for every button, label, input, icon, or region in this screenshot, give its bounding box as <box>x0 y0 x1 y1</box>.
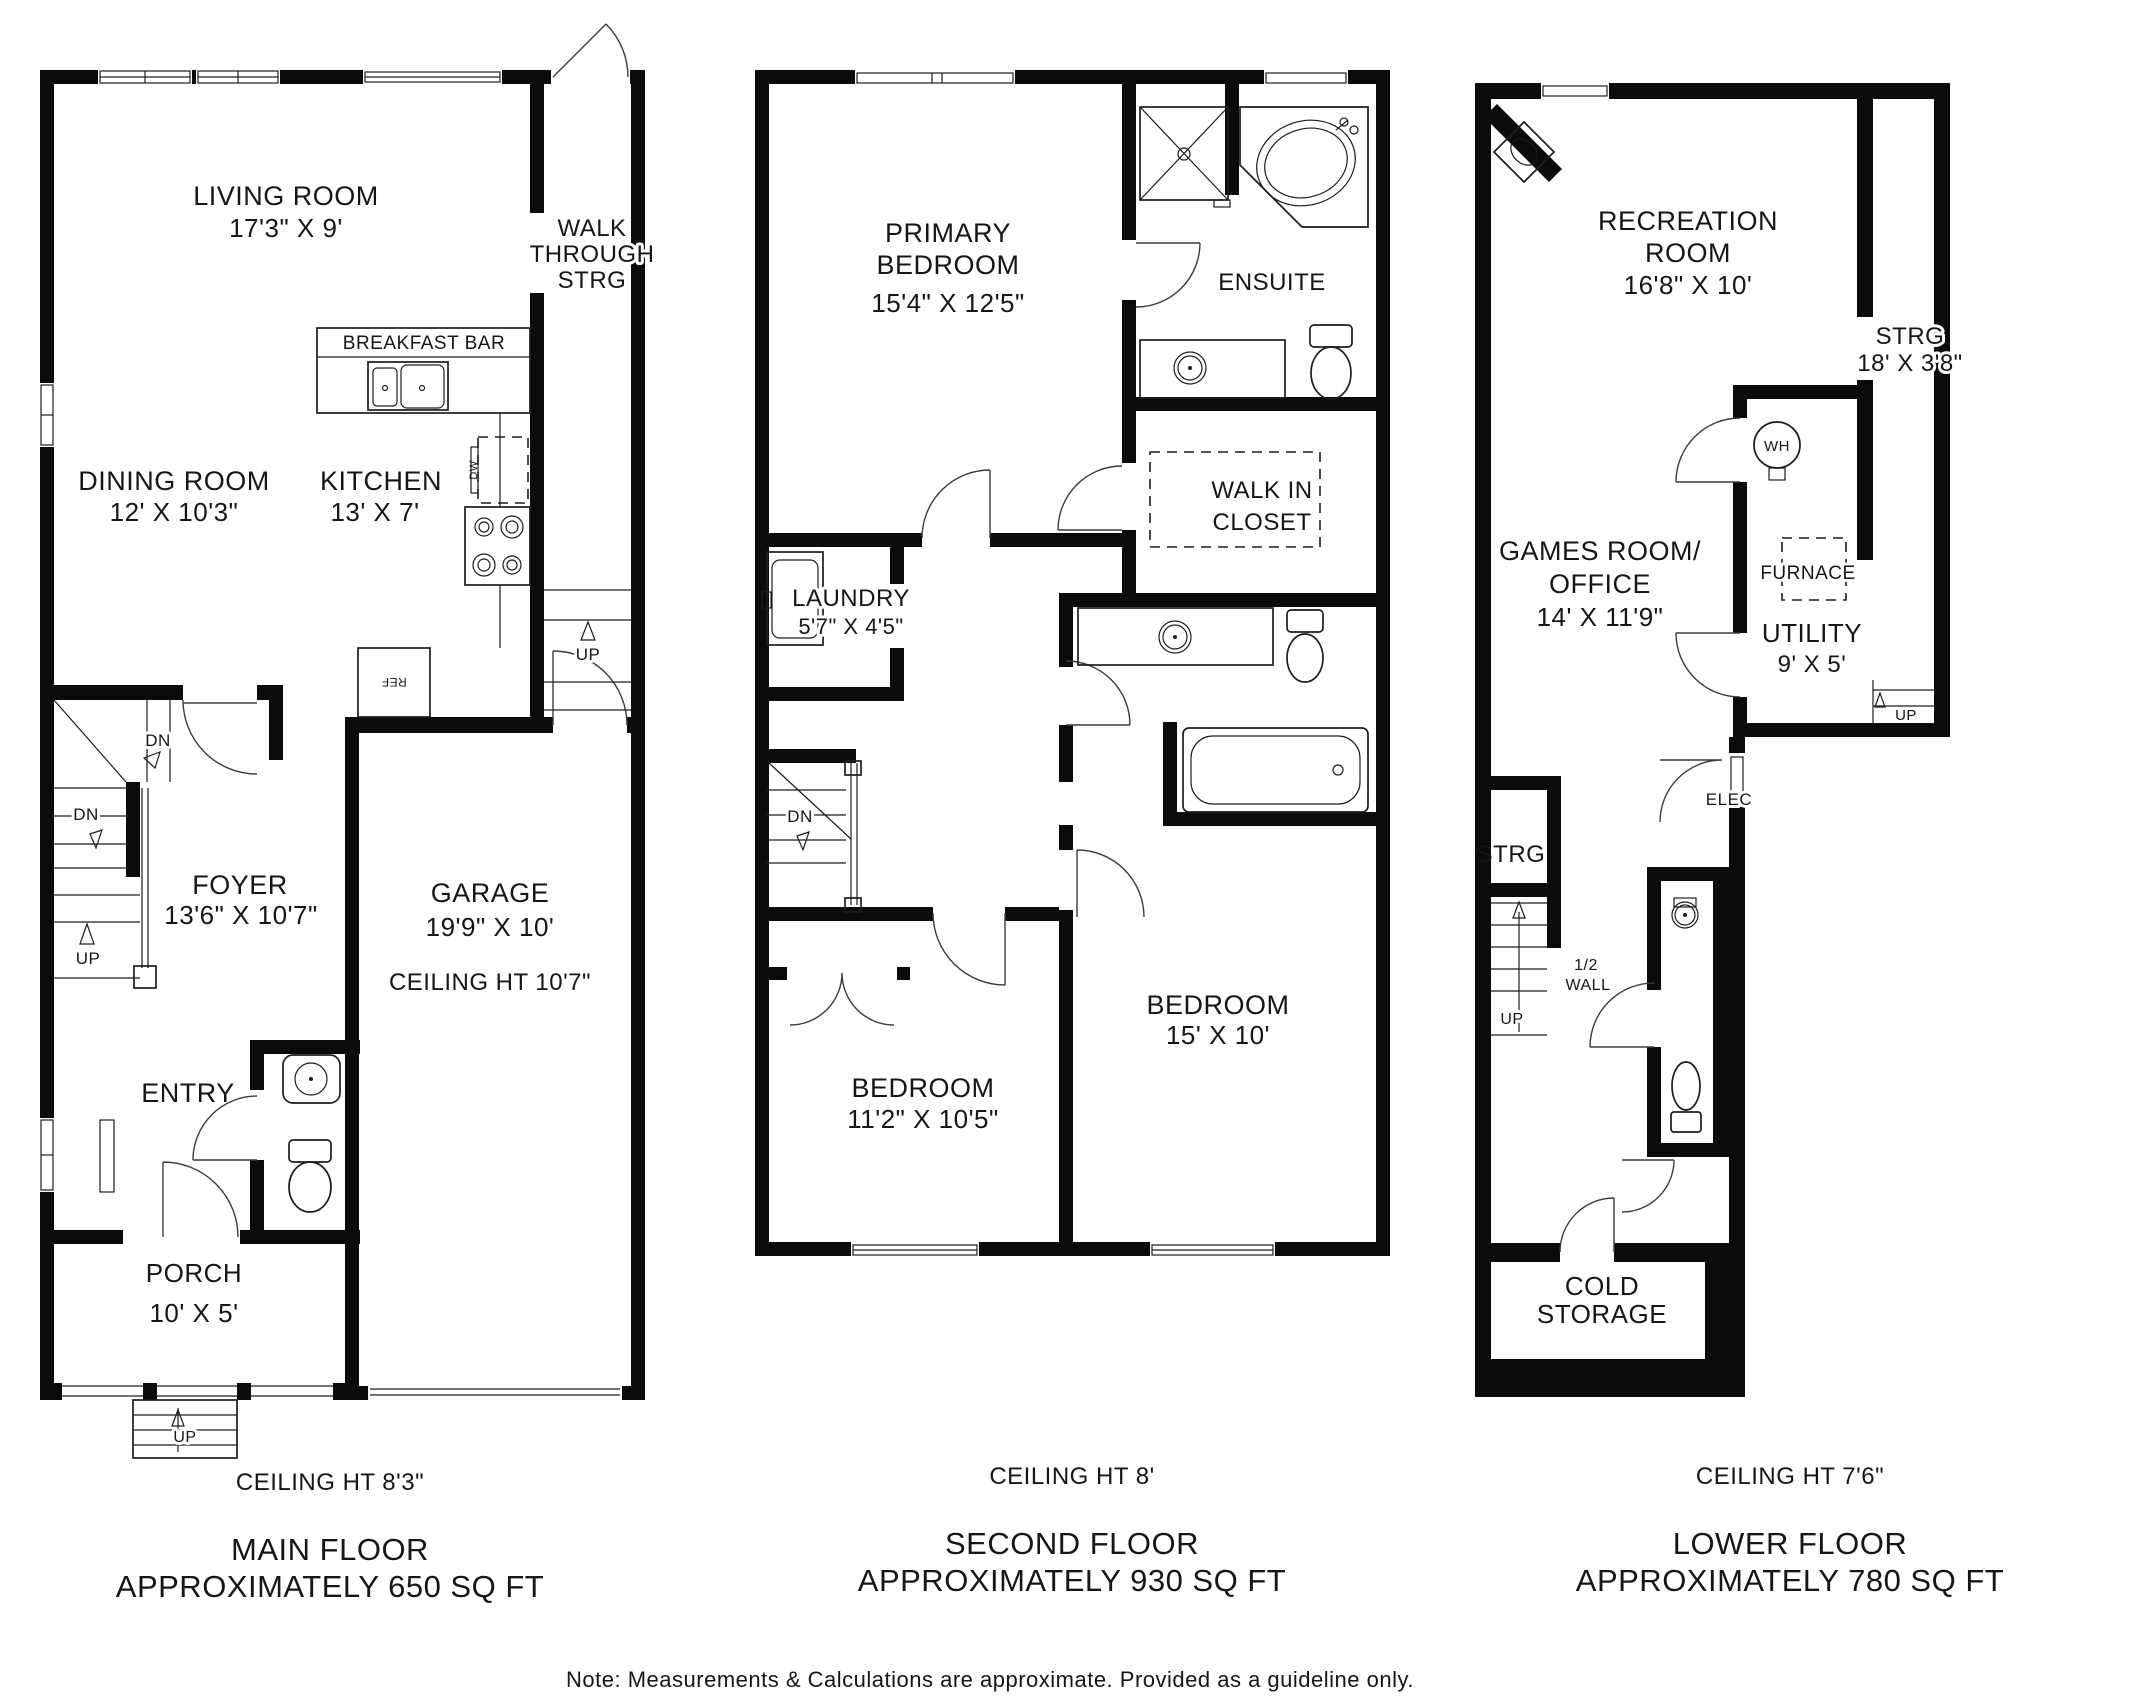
bathroom-door-arc <box>1066 661 1130 725</box>
floorplan-page: LIVING ROOM 17'3" X 9' WALK THROUGH STRG… <box>0 0 2141 1698</box>
bedroom-right-door-arc <box>1077 850 1144 917</box>
ensuite-label: ENSUITE <box>1218 269 1326 296</box>
cold-storage-label: STORAGE <box>1537 1299 1667 1329</box>
primary-bedroom-dims: 15'4" X 12'5" <box>871 288 1024 318</box>
lower-floor-footer: CEILING HT 7'6" LOWER FLOOR APPROXIMATEL… <box>1576 1463 2004 1598</box>
half-wall-label: WALL <box>1566 977 1611 994</box>
bathtub-icon <box>1183 728 1368 812</box>
lower-bath-toilet-icon <box>1671 1062 1701 1132</box>
powder-sink-icon <box>283 1055 340 1103</box>
utility-top-door-arc <box>1676 418 1740 482</box>
dn-label: DN <box>145 731 171 750</box>
dn-arrow-icon <box>90 830 102 848</box>
foyer-label: FOYER <box>192 870 288 900</box>
hall-bottom-door-arc <box>1622 1160 1674 1212</box>
bedroom-left-label: BEDROOM <box>851 1073 994 1103</box>
garage-dims: 19'9" X 10' <box>426 912 555 942</box>
garage-label: GARAGE <box>431 878 550 908</box>
up-arrow-icon <box>1875 693 1885 707</box>
up-arrow-icon <box>80 924 94 944</box>
up-label: UP <box>1895 707 1917 724</box>
walk-in-closet-label: CLOSET <box>1212 509 1311 536</box>
walkthrough-strg-label: WALK <box>557 215 626 242</box>
walkthrough-strg-label: STRG <box>558 267 627 294</box>
lower-bath-sink-icon <box>1672 898 1698 928</box>
shower-icon <box>1140 107 1230 207</box>
primary-bedroom-door-arc <box>922 470 990 538</box>
up-label: UP <box>76 949 101 968</box>
porch-label: PORCH <box>146 1258 242 1288</box>
closet-double-door-arcs <box>790 973 894 1025</box>
living-room-label: LIVING ROOM <box>193 181 379 211</box>
corner-tub-icon <box>1240 107 1368 227</box>
main-floor-footer: CEILING HT 8'3" MAIN FLOOR APPROXIMATELY… <box>116 1469 544 1604</box>
games-room-label: OFFICE <box>1549 569 1651 599</box>
bedroom-left-door-arc <box>933 913 1005 985</box>
kitchen-label: KITCHEN <box>320 466 442 496</box>
ensuite-vanity-icon <box>1140 340 1285 398</box>
cold-storage-label: COLD <box>1565 1271 1639 1301</box>
cold-storage-door-arc <box>1560 1198 1614 1252</box>
entry-closet <box>100 1120 114 1192</box>
utility-dims: 9' X 5' <box>1778 651 1847 678</box>
powder-toilet-icon <box>289 1140 331 1212</box>
laundry-dims: 5'7" X 4'5" <box>798 614 903 639</box>
up-label: UP <box>173 1429 196 1446</box>
closet-door-arc <box>1058 466 1122 530</box>
up-label: UP <box>1500 1011 1523 1028</box>
bath-vanity-icon <box>1078 608 1273 665</box>
strg-right-dims: 18' X 3'8" <box>1857 350 1962 377</box>
recreation-room-dims: 16'8" X 10' <box>1624 270 1753 300</box>
main-floor-name: MAIN FLOOR <box>231 1532 429 1567</box>
games-room-dims: 14' X 11'9" <box>1537 602 1664 632</box>
second-floor-stairs <box>766 761 861 912</box>
bedroom-right-dims: 15' X 10' <box>1166 1020 1270 1050</box>
lower-floor-ceiling: CEILING HT 7'6" <box>1696 1463 1884 1490</box>
main-floor-walls <box>40 70 645 1400</box>
dn-label: DN <box>787 807 813 826</box>
kitchen-dims: 13' X 7' <box>330 497 419 527</box>
dining-room-dims: 12' X 10'3" <box>110 497 239 527</box>
up-label: UP <box>576 645 601 664</box>
bedroom-left-dims: 11'2" X 10'5" <box>847 1104 999 1134</box>
second-floor-fixtures <box>762 107 1368 812</box>
stove-icon <box>465 507 530 585</box>
primary-bedroom-label: BEDROOM <box>876 250 1019 280</box>
breakfast-bar-label: BREAKFAST BAR <box>343 333 505 354</box>
utility-bottom-door-arc <box>1676 633 1740 697</box>
lower-floor-area: APPROXIMATELY 780 SQ FT <box>1576 1563 2004 1598</box>
walk-in-closet-label: WALK IN <box>1211 477 1312 504</box>
foyer-dims: 13'6" X 10'7" <box>164 900 317 930</box>
dn-label: DN <box>73 805 99 824</box>
bath-toilet-icon <box>1287 610 1323 682</box>
second-floor-area: APPROXIMATELY 930 SQ FT <box>858 1563 1286 1598</box>
lower-floor-name: LOWER FLOOR <box>1673 1526 1908 1561</box>
front-door-arc <box>163 1162 238 1237</box>
floorplan-drawing: LIVING ROOM 17'3" X 9' WALK THROUGH STRG… <box>0 0 2141 1698</box>
second-floor-walls <box>755 70 1390 1256</box>
recreation-room-label: ROOM <box>1645 238 1731 268</box>
porch-dims: 10' X 5' <box>149 1298 238 1328</box>
main-floor-ceiling: CEILING HT 8'3" <box>236 1469 424 1496</box>
lower-floor-plan: RECREATION ROOM 16'8" X 10' STRG 18' X 3… <box>1475 81 1963 1397</box>
recreation-room-label: RECREATION <box>1598 206 1778 236</box>
entry-label: ENTRY <box>141 1078 235 1108</box>
bedroom-right-label: BEDROOM <box>1146 990 1289 1020</box>
games-room-label: GAMES ROOM/ <box>1499 536 1701 566</box>
second-floor-footer: CEILING HT 8' SECOND FLOOR APPROXIMATELY… <box>858 1463 1286 1598</box>
garage-ceiling-label: CEILING HT 10'7" <box>389 969 591 996</box>
half-wall-label: 1/2 <box>1574 957 1598 974</box>
walkthrough-strg-label: THROUGH <box>530 241 655 268</box>
second-floor-ceiling: CEILING HT 8' <box>989 1463 1154 1490</box>
dining-room-label: DINING ROOM <box>78 466 270 496</box>
main-floor-plan: LIVING ROOM 17'3" X 9' WALK THROUGH STRG… <box>38 24 654 1458</box>
living-room-dims: 17'3" X 9' <box>229 213 343 243</box>
elec-label: ELEC <box>1706 790 1752 809</box>
ensuite-door-arc <box>1136 243 1200 307</box>
wh-label: WH <box>1764 438 1790 455</box>
furnace-label: FURNACE <box>1760 563 1855 584</box>
dw-label: DW <box>468 460 480 479</box>
strg-right-label: STRG <box>1876 323 1945 350</box>
primary-bedroom-label: PRIMARY <box>885 218 1011 248</box>
utility-label: UTILITY <box>1762 618 1862 648</box>
ref-label: REF <box>381 675 407 689</box>
second-floor-name: SECOND FLOOR <box>945 1526 1199 1561</box>
strg-left-label: STRG <box>1477 841 1546 868</box>
landing-door-arc <box>183 700 257 774</box>
fireplace-diagonal-wall <box>1484 104 1562 182</box>
disclaimer-note: Note: Measurements & Calculations are ap… <box>566 1667 1414 1692</box>
main-floor-area: APPROXIMATELY 650 SQ FT <box>116 1569 544 1604</box>
second-floor-plan: PRIMARY BEDROOM 15'4" X 12'5" ENSUITE WA… <box>755 68 1390 1258</box>
ensuite-toilet-icon <box>1310 325 1352 399</box>
up-arrow-icon <box>581 622 595 640</box>
porch-rail <box>62 1386 333 1396</box>
laundry-label: LAUNDRY <box>792 585 910 612</box>
dn-arrow-icon <box>797 832 809 850</box>
